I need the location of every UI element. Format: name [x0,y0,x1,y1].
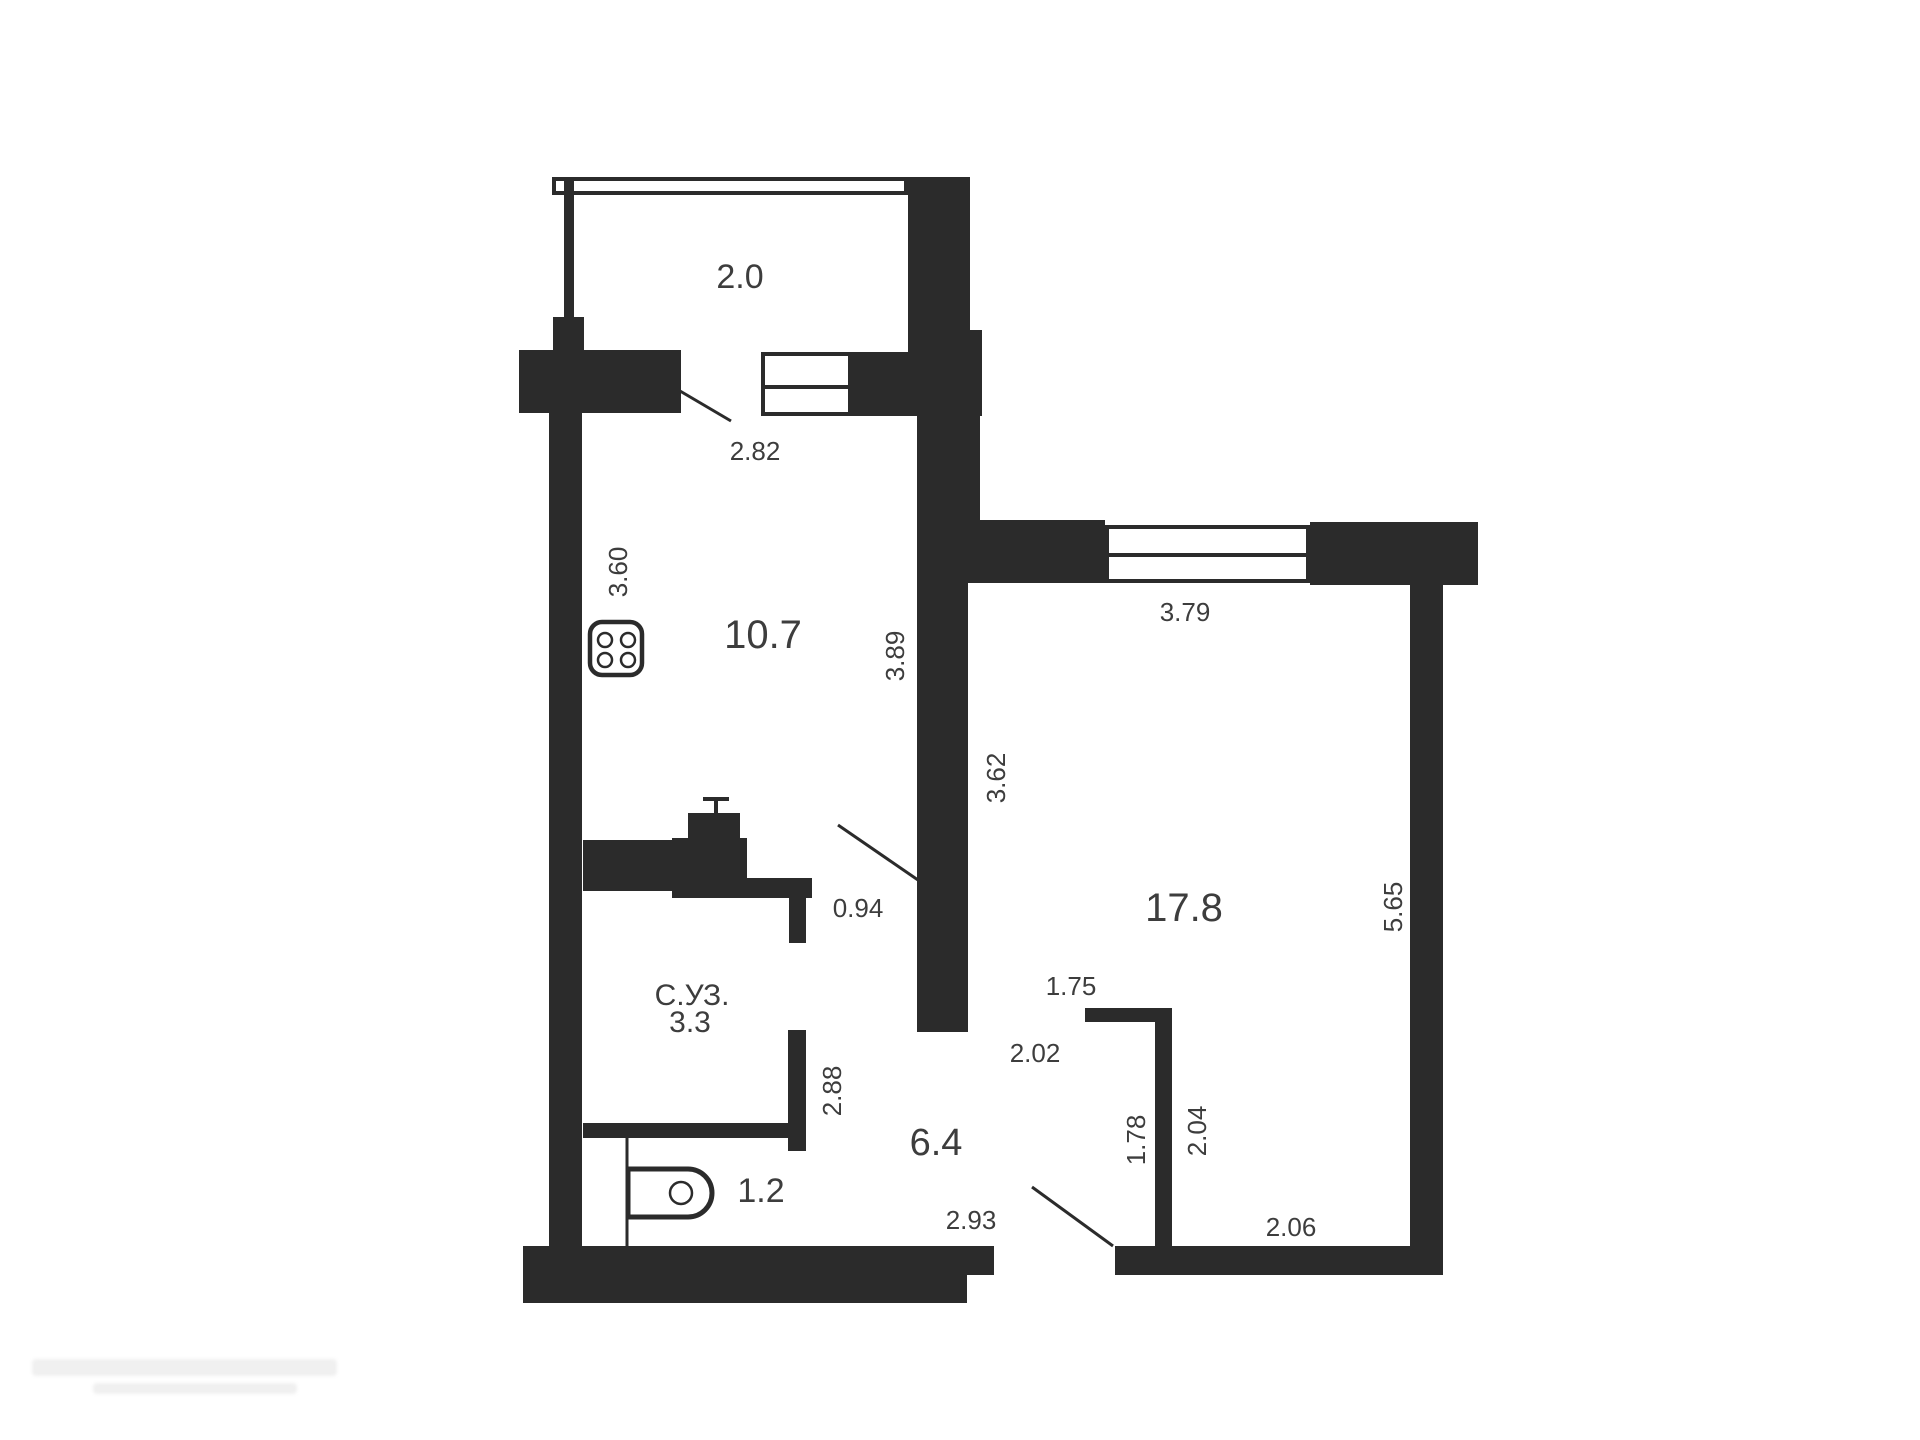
balcony-door-leader-line [680,391,731,421]
floor-plan: 2.0 2.82 3.60 10.7 3.89 3.79 3.62 17.8 5… [0,0,1920,1440]
room-door-leaf-line [1032,1187,1113,1246]
stove-icon [590,622,642,675]
niche-right-dim: 2.04 [1184,1106,1210,1157]
wall-central-upper [917,416,980,520]
wall-shaft-arm [747,878,812,898]
wall-room-top [917,520,1105,583]
wall-left-outer [549,413,582,1246]
kitchen-wall-dim: 3.89 [882,631,908,682]
wall-bathroom-right [788,1030,806,1151]
room-area-label: 17.8 [1145,888,1223,928]
wall-bathroom-bottom [583,1123,788,1138]
kitchen-door-dim: 0.94 [833,895,884,921]
kitchen-depth-dim: 3.60 [605,547,631,598]
wall-bottom-outer-lower [523,1275,967,1303]
wc-height-dim: 2.88 [819,1066,845,1117]
wall-balcony-right [908,177,970,330]
kitchen-area-label: 10.7 [724,615,802,655]
wall-right-outer [1410,585,1443,1246]
wall-balcony-left-block [553,317,584,350]
watermark-line-2 [93,1383,297,1394]
kitchen-window-divider [764,385,849,389]
wall-balcony-right-block [908,330,982,416]
wall-room-bottom [1115,1246,1443,1275]
wall-shaft-finger [789,898,806,943]
room-upper-dim: 3.62 [983,753,1009,804]
room-window-divider [1108,553,1307,557]
hall-bottom-dim: 2.93 [946,1207,997,1233]
niche-top-dim: 1.75 [1046,973,1097,999]
wc-area-label: 3.3 [669,1008,711,1038]
wall-kitchen-window-right [852,352,908,416]
hall-area-label: 6.4 [910,1124,963,1162]
room-window-dim: 3.79 [1160,599,1211,625]
kitchen-door-leaf-line [838,825,918,880]
room-right-dim: 5.65 [1380,882,1406,933]
wall-shaft-top [688,813,740,838]
wall-top-right-block [1310,522,1478,585]
room-bottom-dim: 2.06 [1266,1214,1317,1240]
watermark-line-1 [32,1359,337,1376]
wall-shaft-block [672,838,747,898]
toilet-area-label: 1.2 [737,1174,784,1208]
wall-bottom-outer-upper [523,1246,994,1275]
wall-kitchen-top-left [519,350,681,413]
pipe-riser-icon [703,799,729,813]
balcony-door-dim: 2.82 [730,438,781,464]
kitchen-window [761,352,852,416]
wall-balcony-left-thin [564,181,574,317]
room-window [1105,525,1310,583]
niche-left-dim: 1.78 [1123,1115,1149,1166]
hall-top-dim: 2.02 [1010,1040,1061,1066]
wall-niche-vertical [1155,1008,1172,1246]
toilet-icon [628,1169,712,1217]
balcony-area-label: 2.0 [716,260,763,294]
wall-bathroom-top-band [583,840,672,891]
wall-central-lower [917,583,968,1032]
balcony-railing [552,177,908,195]
